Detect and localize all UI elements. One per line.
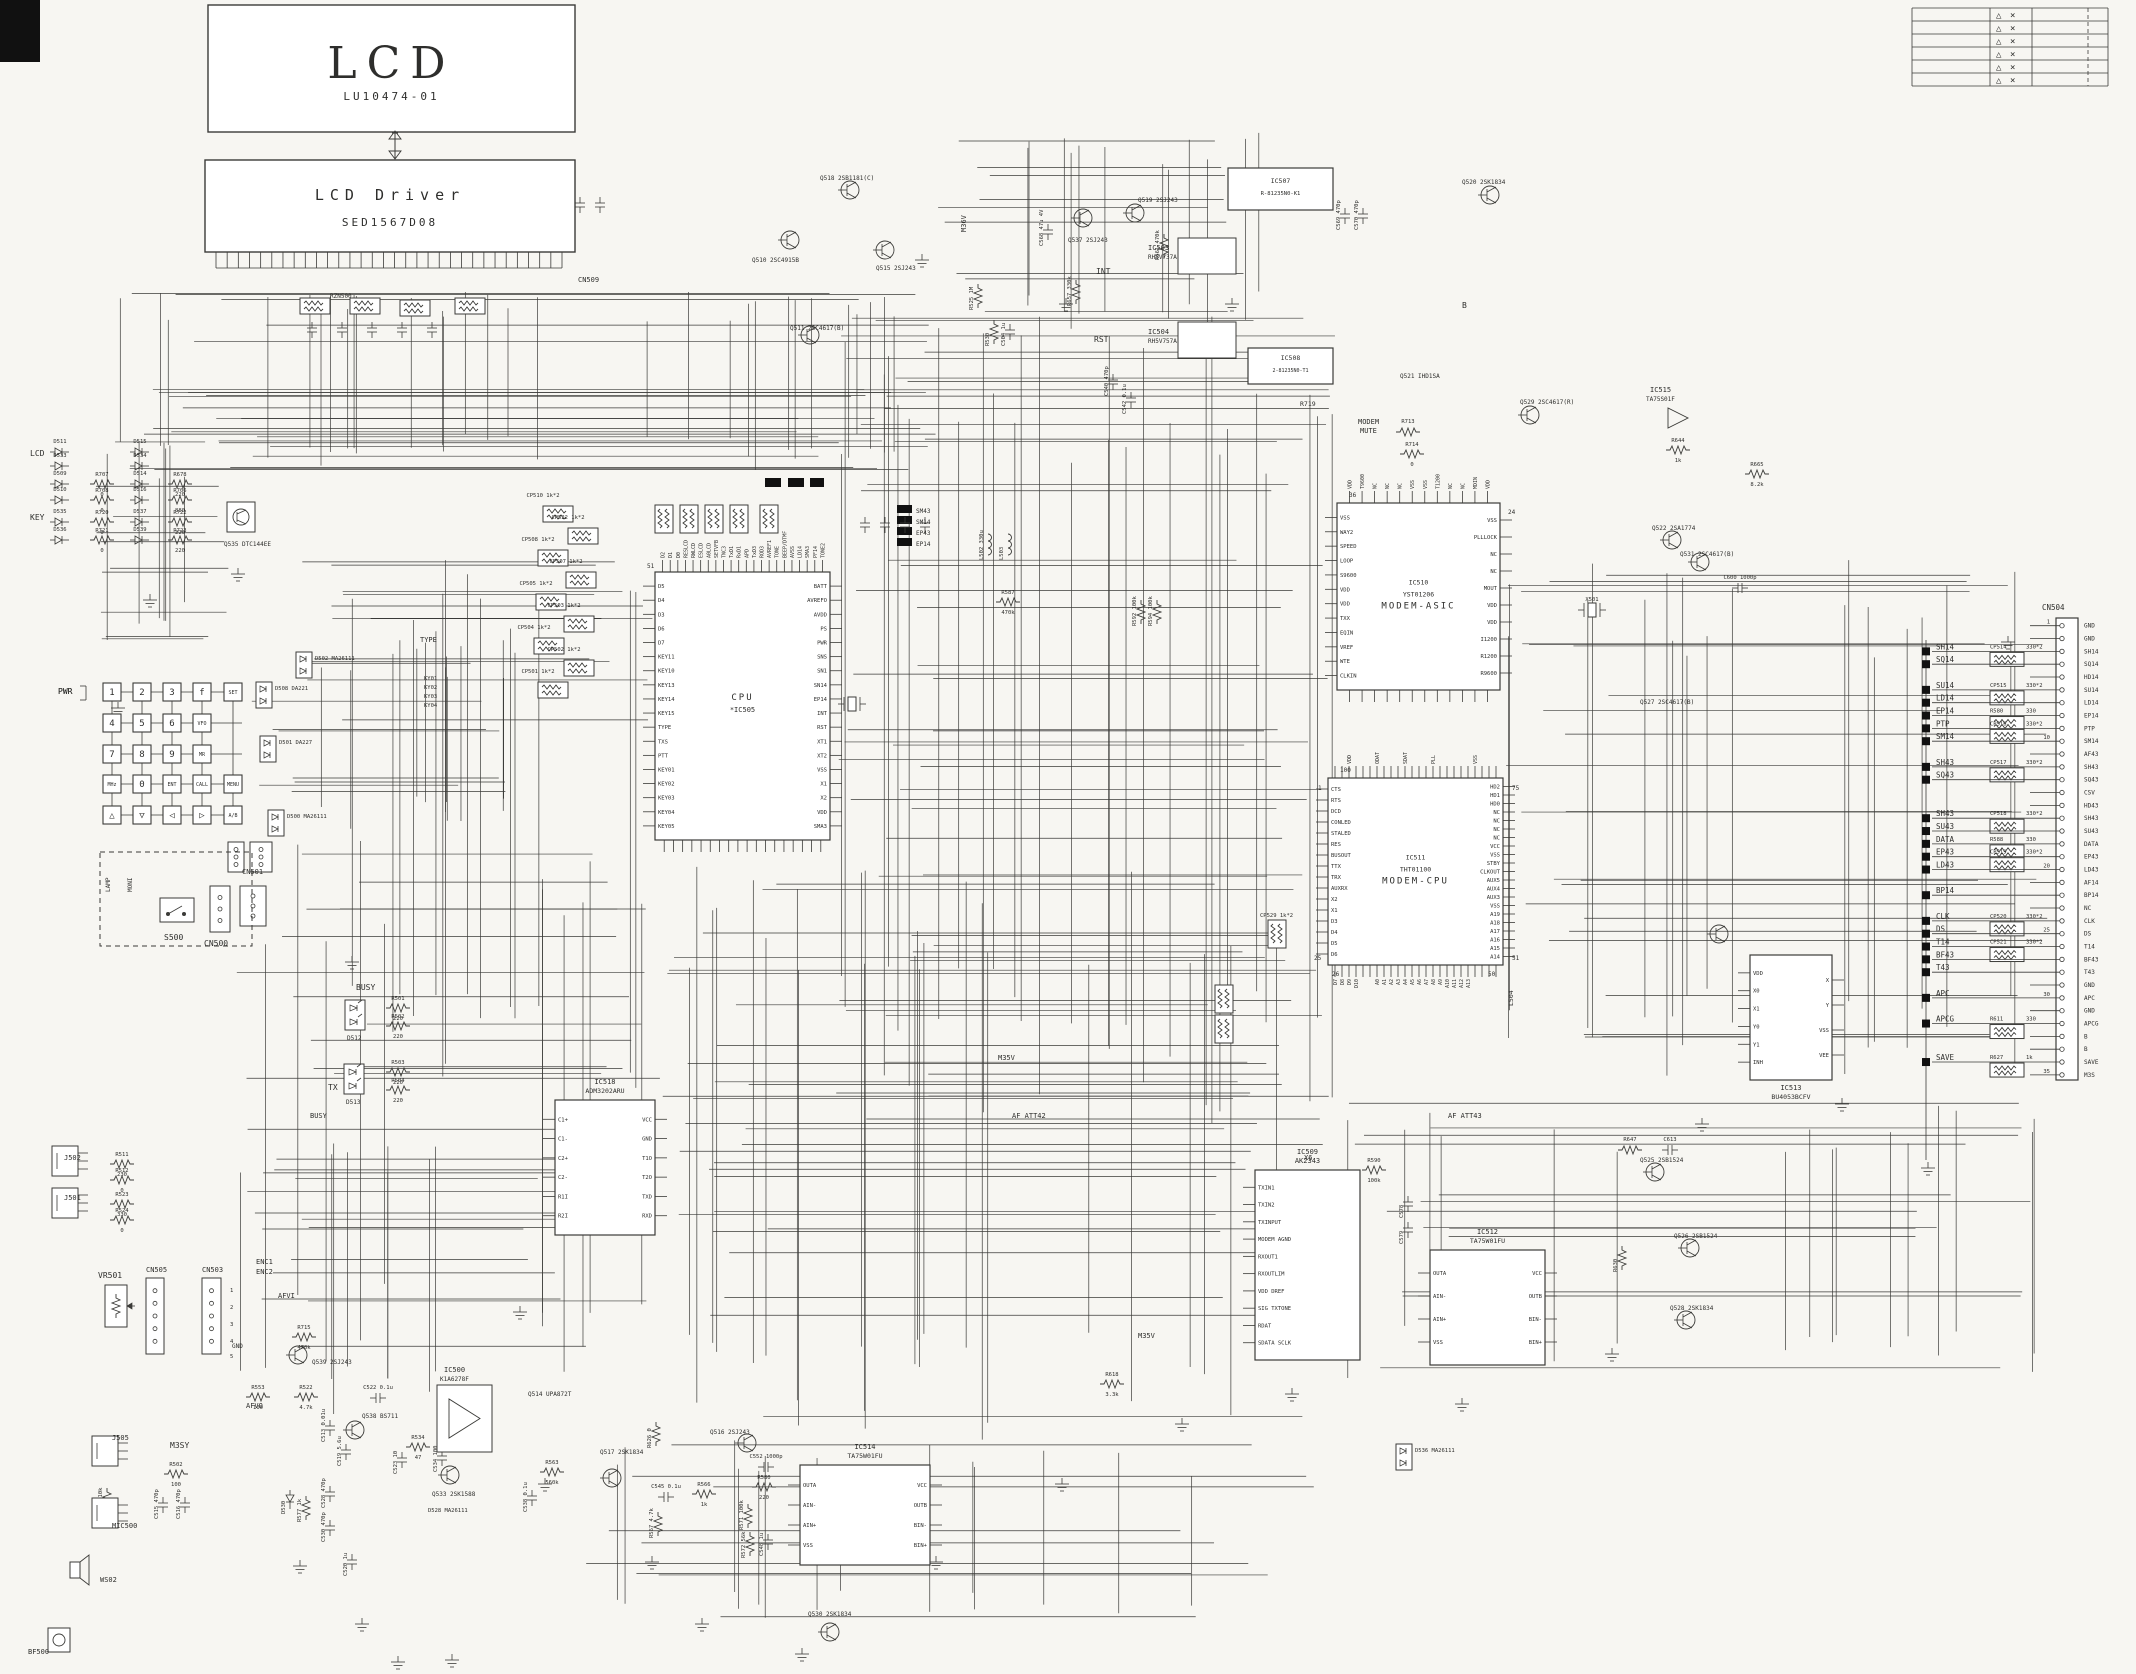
comp-label: 4.7k [299,1405,313,1411]
comp-value: 330*2 [2026,760,2043,766]
comp-box [1178,322,1236,358]
pin-number: 1 [2047,620,2050,626]
pin-label: VSS [817,767,827,773]
ground-symbol [929,1556,943,1569]
connector-pin-label: NC [2084,905,2092,912]
key-MENU: MENU [224,775,242,793]
comp-d-D534: D534 [130,453,149,470]
comp-indv-L503: L503 [999,534,1012,560]
comp-capv [595,197,605,213]
comp-ref: CP519 [1990,850,2007,856]
connector-pin-label: LD14 [2084,700,2099,707]
comp-label: R708 [95,488,108,494]
pin-label: SIG TXTONE [1258,1306,1291,1312]
key-MR: MR [193,745,211,763]
pin-label: RxD1 [737,546,743,558]
comp-capv-C568: C568 47u 4V [1039,209,1053,246]
key-label: 0 [139,780,144,790]
comp-label: D533 [53,453,66,459]
pin-label: KEY04 [658,810,675,816]
keypad: 123fSET456VFO789MRMHz0ENTCALLMENU△▽◁▷A/B… [58,683,242,824]
pin-label: D4 [658,598,665,604]
signal-label: APCG [1936,1015,1955,1024]
comp-capv-C515: C515 470p [154,1489,168,1519]
comp-resv-R525: R525 1M [969,284,982,310]
comp-value: 330*2 [2026,850,2043,856]
pin-label: TONE2 [820,543,826,558]
revision-x-mark: × [2010,50,2015,60]
comp-d-D509: D509 [50,471,69,488]
comp-label: C568 47u 4V [1039,209,1045,246]
key-MHz: MHz [103,775,121,793]
text-label: MONI [127,877,134,892]
comp-tr [600,1469,621,1487]
comp-resnetv [1268,920,1286,948]
pin-label: NC [1448,483,1454,489]
text-label: CN509 [578,276,599,284]
revision-x-mark: × [2010,11,2015,21]
connector-pin-label: EP43 [2084,854,2099,861]
comp-resnet-CP501: CP501 1k*2 [521,669,568,698]
block-title: IC518 [594,1078,615,1086]
pin-label: CLKIN [1340,674,1357,680]
pin-label: AVREF1 [767,540,773,558]
lcd-part: LU10474-01 [343,90,439,103]
comp-value: 1k [2026,1055,2033,1061]
pin-label: VSS [1340,515,1350,521]
pin-label: BIN+ [914,1543,928,1549]
comp-resv-R657: R657 330k [1067,276,1080,306]
text-label: Q522 2SA1774 [1652,525,1696,532]
comp-label: D530 [281,1501,287,1514]
text-label: KY01 [424,676,437,682]
pin-label: XT1 [817,739,827,745]
pin-label: AIN- [803,1503,816,1509]
text-label: IC503 [1148,244,1169,252]
comp-micj [48,1628,70,1652]
text-label: Q518 2SB1181(C) [820,175,874,182]
block-cpu: CPU*IC505D5D4D3D6D7KEY11KEY10KEY13KEY14K… [643,531,842,852]
comp-d-D536: D536 [50,527,69,544]
wire-mesh [96,133,2047,1618]
comp-label: CP504 1k*2 [517,625,550,631]
pin-label: NC [1493,810,1500,816]
signal-label: T14 [1936,938,1950,947]
ground-symbol [645,1556,659,1569]
key-label: 1 [109,688,114,698]
text-label: ENC1 [256,1258,273,1266]
pin-label: TXINPUT [1258,1220,1282,1226]
key-label: f [199,688,204,698]
comp-label: D513 [346,1099,361,1106]
ground-symbol [1605,1348,1619,1361]
pin-label: VDD [1347,755,1353,764]
comp-label: C548 1u [759,1533,765,1556]
pin-label: BIN- [1529,1317,1542,1323]
pin-number: 30 [2043,992,2050,998]
pin-label: AVSS [790,546,796,558]
key-label: 4 [109,719,114,729]
ground-symbol [1695,1118,1709,1131]
pin-label: A18 [1490,921,1500,927]
text-label: B [1462,301,1467,310]
signal-label: SU14 [1936,681,1955,690]
pin-label: AUX4 [1487,887,1501,893]
pin-label: SETVFB [714,540,720,558]
pin-label: OUTA [803,1483,817,1489]
comp-tr [1071,209,1092,227]
comp-resnet [455,298,485,314]
pin-label: C2+ [558,1156,569,1162]
block-title: TA75W01FU [1470,1237,1505,1245]
pin-label: A13 [1466,979,1472,988]
schematic-canvas: C569 470pC570 470pR713R7140R525 1MR530C5… [0,0,2136,1674]
key-8: 8 [133,745,151,763]
key-label: 3 [169,688,174,698]
signal-label: DATA [1936,835,1955,844]
pin-label: VSS [1433,1340,1443,1346]
comp-label: C569 470p [1336,200,1342,230]
connector-pin-label: LD43 [2084,867,2099,874]
pin-label: BEEP/DTMF [782,531,788,558]
key-label: ▷ [199,811,205,821]
pin-label: MOUT [1484,586,1498,592]
comp-label: X501 [1585,597,1598,603]
comp-label: D534 [133,453,147,459]
comp-res-R534: R53447 [406,1435,430,1461]
block-ic512: IC512TA75W01FUOUTAAIN-AIN+VSSVCCOUTBBIN-… [1418,1228,1557,1365]
comp-label: 560k [545,1480,559,1486]
pin-label: VSS [1423,480,1429,489]
comp-label: 0 [100,548,103,554]
comp-label: C552 1000p [749,1454,782,1460]
signal-row-T43: T43 [1922,963,2030,976]
comp-capv-C523: C523 10 [393,1451,407,1474]
signal-label: LD14 [1936,694,1955,703]
comp-label: D500 MA26111 [287,814,327,820]
lcd-driver-title: LCD Driver [315,186,465,204]
pin-label: A3 [1396,979,1402,985]
comp-label: D512 [347,1035,362,1042]
comp-res-R502: R502100 [164,1462,188,1488]
text-label: TX [328,1083,338,1092]
block-ic509: IC509AK2343TXIN1TXIN2TXINPUTMODEM AGNDRX… [1243,1148,1360,1360]
pin-label: SMA3 [814,824,827,830]
comp-resnet-CP507: CP507 1k*2 [549,559,596,588]
comp-conn5 [202,1278,221,1354]
comp-label: R580 [757,1475,770,1481]
pin-label: A16 [1490,938,1500,944]
comp-resv-R572: R572 56k [741,1531,754,1558]
pin-label: A15 [1490,946,1500,952]
comp-tr [1660,531,1681,549]
comp-cap-C522: C522 0.1u [363,1385,393,1403]
text-label: Q521 IHD1SA [1400,373,1440,380]
pin-label: NC [1373,483,1379,489]
text-label: PWR [58,687,73,696]
comp-indv-L502: L502 330u [979,530,992,560]
pin-label: D4 [1331,930,1338,936]
comp-label: D510 [53,487,66,493]
pin-label: D6 [658,626,665,632]
comp-label: 220 [393,1098,403,1104]
key-▷: ▷ [193,806,211,824]
pin-label: VDD [1487,620,1497,626]
key-6: 6 [163,714,181,732]
pin-number: 1 [1318,785,1322,792]
key-label: 9 [169,750,174,760]
pin-label: X1 [820,782,827,788]
block-title: BU4053BCFV [1771,1093,1810,1101]
comp-label: R706 [173,488,186,494]
comp-tr [1643,1163,1664,1181]
key-CALL: CALL [193,775,211,793]
pin-label: VDD [1340,602,1350,608]
comp-label: C520 1u [343,1553,349,1576]
pin-label: KEY05 [658,824,675,830]
comp-label: C600 1000p [1723,575,1756,581]
comp-label: R723 [173,528,186,534]
pin-label: EQIN [1340,630,1353,636]
connector-pin-label: SM14 [2084,738,2099,745]
comp-res-R580: R580220 [752,1475,776,1501]
text-label: RST [1094,335,1109,344]
pin-label: SDAT [1403,752,1409,764]
pin-label: MODEM AGND [1258,1237,1291,1243]
key-SET: SET [224,683,242,701]
pin-label: SDATA SCLK [1258,1341,1292,1347]
key-label: △ [109,811,115,821]
comp-dv-D530: D530 [281,1490,294,1514]
block-ic507: IC507R-81235N0-K1 [1228,168,1333,210]
pin-label: C1- [558,1137,568,1143]
pin-label: PF14 [813,546,819,558]
comp-resnetv [680,505,698,533]
comp-label: D539 [133,527,146,533]
pin-label: RXD [642,1214,652,1220]
pin-label: RXOUTLIM [1258,1272,1285,1278]
pin-label: A19 [1490,912,1500,918]
comp-label: C545 0.1u [651,1484,681,1490]
key-9: 9 [163,745,181,763]
pin-label: GND [642,1137,652,1143]
comp-label: R566 [697,1482,710,1488]
text-label: Q520 2SK1834 [1462,179,1506,186]
pin-label: TxD1 [729,546,735,558]
comp-resnet-CP522: CP522 1k*2 [551,515,598,544]
pin-label: ODAT [1375,752,1381,764]
ground-symbol [1921,1162,1935,1175]
pin-label: TXX [1340,616,1351,622]
connector-pin-label: T14 [2084,944,2095,951]
connector-pin-label: BP14 [2084,892,2099,899]
revision-row: △× [1996,37,2015,47]
solid-mark [897,538,912,546]
pin-label: D6 [1331,952,1338,958]
signal-label: EP43 [1936,848,1954,857]
pin-label: SN1 [817,669,827,675]
text-label: RH5V737A [1148,254,1177,261]
comp-label: R721 [95,528,108,534]
signal-label: T43 [1936,963,1950,972]
pin-label: A0 [1375,979,1381,985]
comp-ref: CP517 [1990,760,2007,766]
connector-pin-label: EP14 [2084,713,2099,720]
comp-ref: CP520 [1990,914,2007,920]
comp-tr [1518,406,1539,424]
revision-triangle-icon: △ [1996,63,2002,73]
text-label: R719 [1300,400,1316,408]
pin-label: S9600 [1340,573,1357,579]
revision-x-mark: × [2010,24,2015,34]
comp-label: C613 [1663,1137,1676,1143]
comp-value: 330*2 [2026,644,2043,650]
comp-ref: CP521 [1990,940,2007,946]
text-label: AFVI [278,1292,295,1300]
text-label: M35V [998,1054,1016,1062]
pin-number: 36 [1349,492,1357,499]
text-label: M35V [1138,1332,1156,1340]
comp-res-R665: R6658.2k [1745,462,1769,488]
key-A/B: A/B [224,806,242,824]
connector-pin-label: SU14 [2084,687,2099,694]
connector-pin-label: HD14 [2084,674,2099,681]
key-1: 1 [103,683,121,701]
comp-resnetv [730,505,748,533]
comp-resnetv [1215,1015,1233,1043]
pin-label: RTS [1331,798,1341,804]
pin-label: VSS [1819,1028,1829,1034]
block-title: IC508 [1281,354,1301,362]
pin-label: SMA3 [805,546,811,558]
text-label: Q525 2SB1524 [1640,1157,1684,1164]
comp-label: C516 470p [176,1489,182,1519]
text-label: EP43 [916,530,931,537]
comp-label: D509 [53,471,66,477]
comp-capv [427,322,437,338]
key-label: SET [228,690,237,696]
block-title: ADM3202ARU [585,1087,624,1095]
connector-pin-label: SH14 [2084,648,2099,655]
ground-symbol [1225,298,1239,311]
signal-label: SH14 [1936,642,1955,651]
connector-pin-label: SAVE [2084,1059,2099,1066]
comp-res-R644: R6441k [1666,438,1690,464]
comp-label: R665 [1750,462,1763,468]
comp-label: R715 [297,1325,310,1331]
pin-label: ROD3 [760,546,766,558]
text-label: Q516 2SJ243 [710,1429,750,1436]
key-▽: ▽ [133,806,151,824]
pin-label: RESLCD [683,540,689,558]
solid-mark [810,478,824,487]
pin-label: VCC [642,1117,652,1123]
comp-label: R524 [115,1208,129,1214]
pin-label: VDD [1753,971,1763,977]
key-label: ENT [167,782,176,788]
comp-label: D536 MA26111 [1415,1448,1455,1454]
comp-resv-R567: R567 4.7k [649,1508,662,1538]
pin-label: AUX3 [1487,895,1500,901]
comp-label: R571 100k [739,1500,745,1530]
pin-label: PTT [658,753,669,759]
solid-mark [897,527,912,535]
comp-label: R504 [391,1078,405,1084]
comp-res-R522: R5224.7k [294,1385,318,1411]
pin-number: 100 [1340,767,1351,774]
comp-label: R502 [169,1462,182,1468]
block-title: IC511 [1406,854,1426,862]
connector-pin-label: GND [2084,636,2095,643]
pin-label: C2- [558,1175,568,1181]
text-label: Q530 2SK1834 [808,1611,852,1618]
ground-symbol [795,1648,809,1661]
text-label: CP529 1k*2 [1260,913,1293,919]
comp-d-D535: D535 [50,509,69,526]
comp-tr [818,1623,839,1641]
pin-label: LD14 [798,546,804,558]
comp-jack [52,1188,88,1218]
comp-xtal-X501: X501 [1578,597,1606,617]
comp-resnetv [655,505,673,533]
ground-symbol [1835,1098,1849,1111]
comp-capv-C520: C520 1u [343,1553,357,1576]
pin-label: TONE [775,546,781,558]
comp-R611: R611330 [1990,1017,2036,1039]
pin-label: VDD DREF [1258,1289,1285,1295]
pin-number: 51 [647,563,655,570]
comp-res-R511: R511230 [110,1152,134,1178]
block-title: THT01100 [1400,866,1431,874]
comp-label: R618 [1105,1372,1118,1378]
comp-resv-R626: R626 0 [647,1422,660,1448]
key-VFO: VFO [193,714,211,732]
text-label: BF500 [28,1648,49,1656]
comp-value: 330*2 [2026,721,2043,727]
comp-capv-C530: C530 470p [321,1512,335,1542]
comp-res-R587: R587470k [996,590,1020,616]
comp-resv-R594: R594 100k [1148,596,1161,626]
comp-label: R563 [545,1460,558,1466]
text-label: X6 [1304,1154,1312,1162]
pin-label: LOOP [1340,559,1354,565]
connector-pin-label: DATA [2084,841,2099,848]
signal-label: LD43 [1936,861,1954,870]
comp-label: CP508 1k*2 [521,537,554,543]
comp-label: 8.2k [1750,482,1764,488]
pin-label: PWR [817,641,828,647]
comp-resnet-CP503: CP503 1k*2 [547,603,594,632]
signal-row-BP14: BP14 [1922,886,2030,899]
comp-label: 220 [759,1495,769,1501]
pin-label: BIN+ [1529,1340,1543,1346]
comp-CP514: CP514330*2 [1990,644,2043,666]
key-label: 2 [139,688,144,698]
text-label: BUSY [310,1112,328,1120]
key-f: f [193,683,211,701]
revision-x-mark: × [2010,37,2015,47]
comp-resnetv [705,505,723,533]
pin-label: VREF [1340,645,1353,651]
pin-label: D2 [661,552,667,558]
comp-value: 330 [2026,709,2036,715]
pin-number: 75 [1512,785,1520,792]
ground-symbol [695,1618,709,1631]
pin-label: DCD [1331,809,1341,815]
pin-label: KEY02 [658,782,675,788]
comp-label: R707 [95,472,108,478]
comp-conn5 [146,1278,164,1354]
